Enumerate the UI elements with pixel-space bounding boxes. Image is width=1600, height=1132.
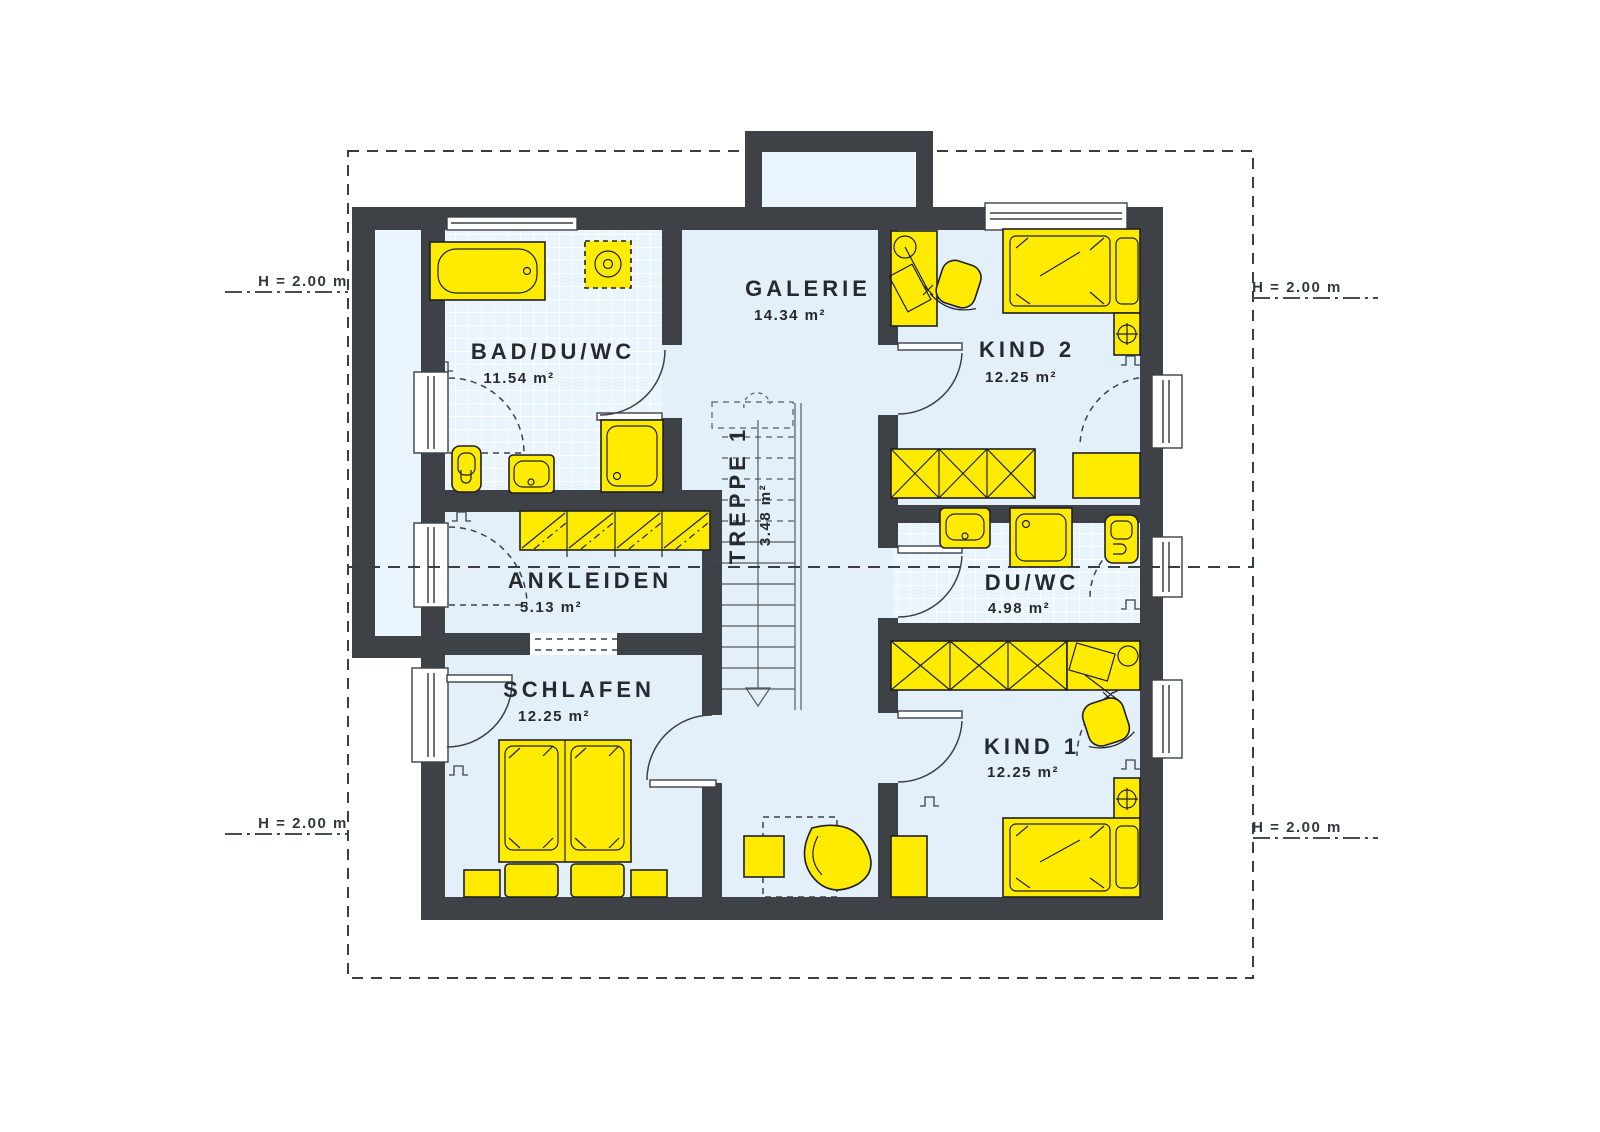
bed-cushion-right xyxy=(571,864,624,897)
washbasin-duwc xyxy=(940,508,990,548)
wardrobe-kind1 xyxy=(891,641,1067,690)
room-label-bad: BAD/DU/WC xyxy=(471,339,635,364)
washbasin-bad xyxy=(509,455,554,493)
washing-machine xyxy=(585,241,631,288)
room-area-treppe: 3.48 m² xyxy=(757,484,774,546)
floor-plan-drawing: BAD/DU/WC 11.54 m² GALERIE 14.34 m² KIND… xyxy=(0,0,1600,1132)
room-label-kind1: KIND 1 xyxy=(984,734,1080,759)
sliding-door-ankleiden-schlafen xyxy=(524,633,623,655)
dresser-kind1 xyxy=(891,836,927,897)
toilet-bad xyxy=(452,446,481,492)
radiator-kind2 xyxy=(1114,313,1140,355)
bed-kind2 xyxy=(1003,229,1140,313)
nightstand-left xyxy=(464,870,500,897)
room-area-bad: 11.54 m² xyxy=(483,370,554,387)
bathtub xyxy=(430,242,545,300)
shower-bad xyxy=(601,420,663,492)
height-mark-top-left: H = 2.00 m xyxy=(258,273,348,290)
height-mark-bottom-left: H = 2.00 m xyxy=(258,815,348,832)
bed-cushion-left xyxy=(505,864,558,897)
room-label-schlafen: SCHLAFEN xyxy=(503,677,655,702)
room-label-duwc: DU/WC xyxy=(985,570,1080,595)
room-area-duwc: 4.98 m² xyxy=(988,600,1050,617)
shower-duwc xyxy=(1010,508,1072,567)
window-kind2-top xyxy=(985,203,1127,230)
wardrobe-kind2 xyxy=(891,449,1035,498)
stool xyxy=(744,836,784,877)
room-area-galerie: 14.34 m² xyxy=(754,307,826,324)
room-label-galerie: GALERIE xyxy=(745,276,871,301)
nightstand-right xyxy=(631,870,667,897)
toilet-duwc xyxy=(1105,515,1138,563)
dresser-kind2 xyxy=(1073,453,1140,498)
room-area-kind1: 12.25 m² xyxy=(987,764,1059,781)
room-label-ankleiden: ANKLEIDEN xyxy=(508,568,672,593)
desk-kind2 xyxy=(889,231,937,326)
room-area-schlafen: 12.25 m² xyxy=(518,708,590,725)
bed-kind1 xyxy=(1003,818,1140,897)
wardrobe-ankleiden xyxy=(520,511,710,557)
height-mark-bottom-right: H = 2.00 m xyxy=(1252,819,1342,836)
room-area-kind2: 12.25 m² xyxy=(985,369,1057,386)
radiator-kind1 xyxy=(1114,778,1140,820)
room-label-treppe: TREPPE 1 xyxy=(725,426,750,564)
height-mark-top-right: H = 2.00 m xyxy=(1252,279,1342,296)
room-area-ankleiden: 5.13 m² xyxy=(520,599,582,616)
room-label-kind2: KIND 2 xyxy=(979,337,1075,362)
window-bad-top xyxy=(447,217,577,230)
floor-plan-page: BAD/DU/WC 11.54 m² GALERIE 14.34 m² KIND… xyxy=(0,0,1600,1132)
